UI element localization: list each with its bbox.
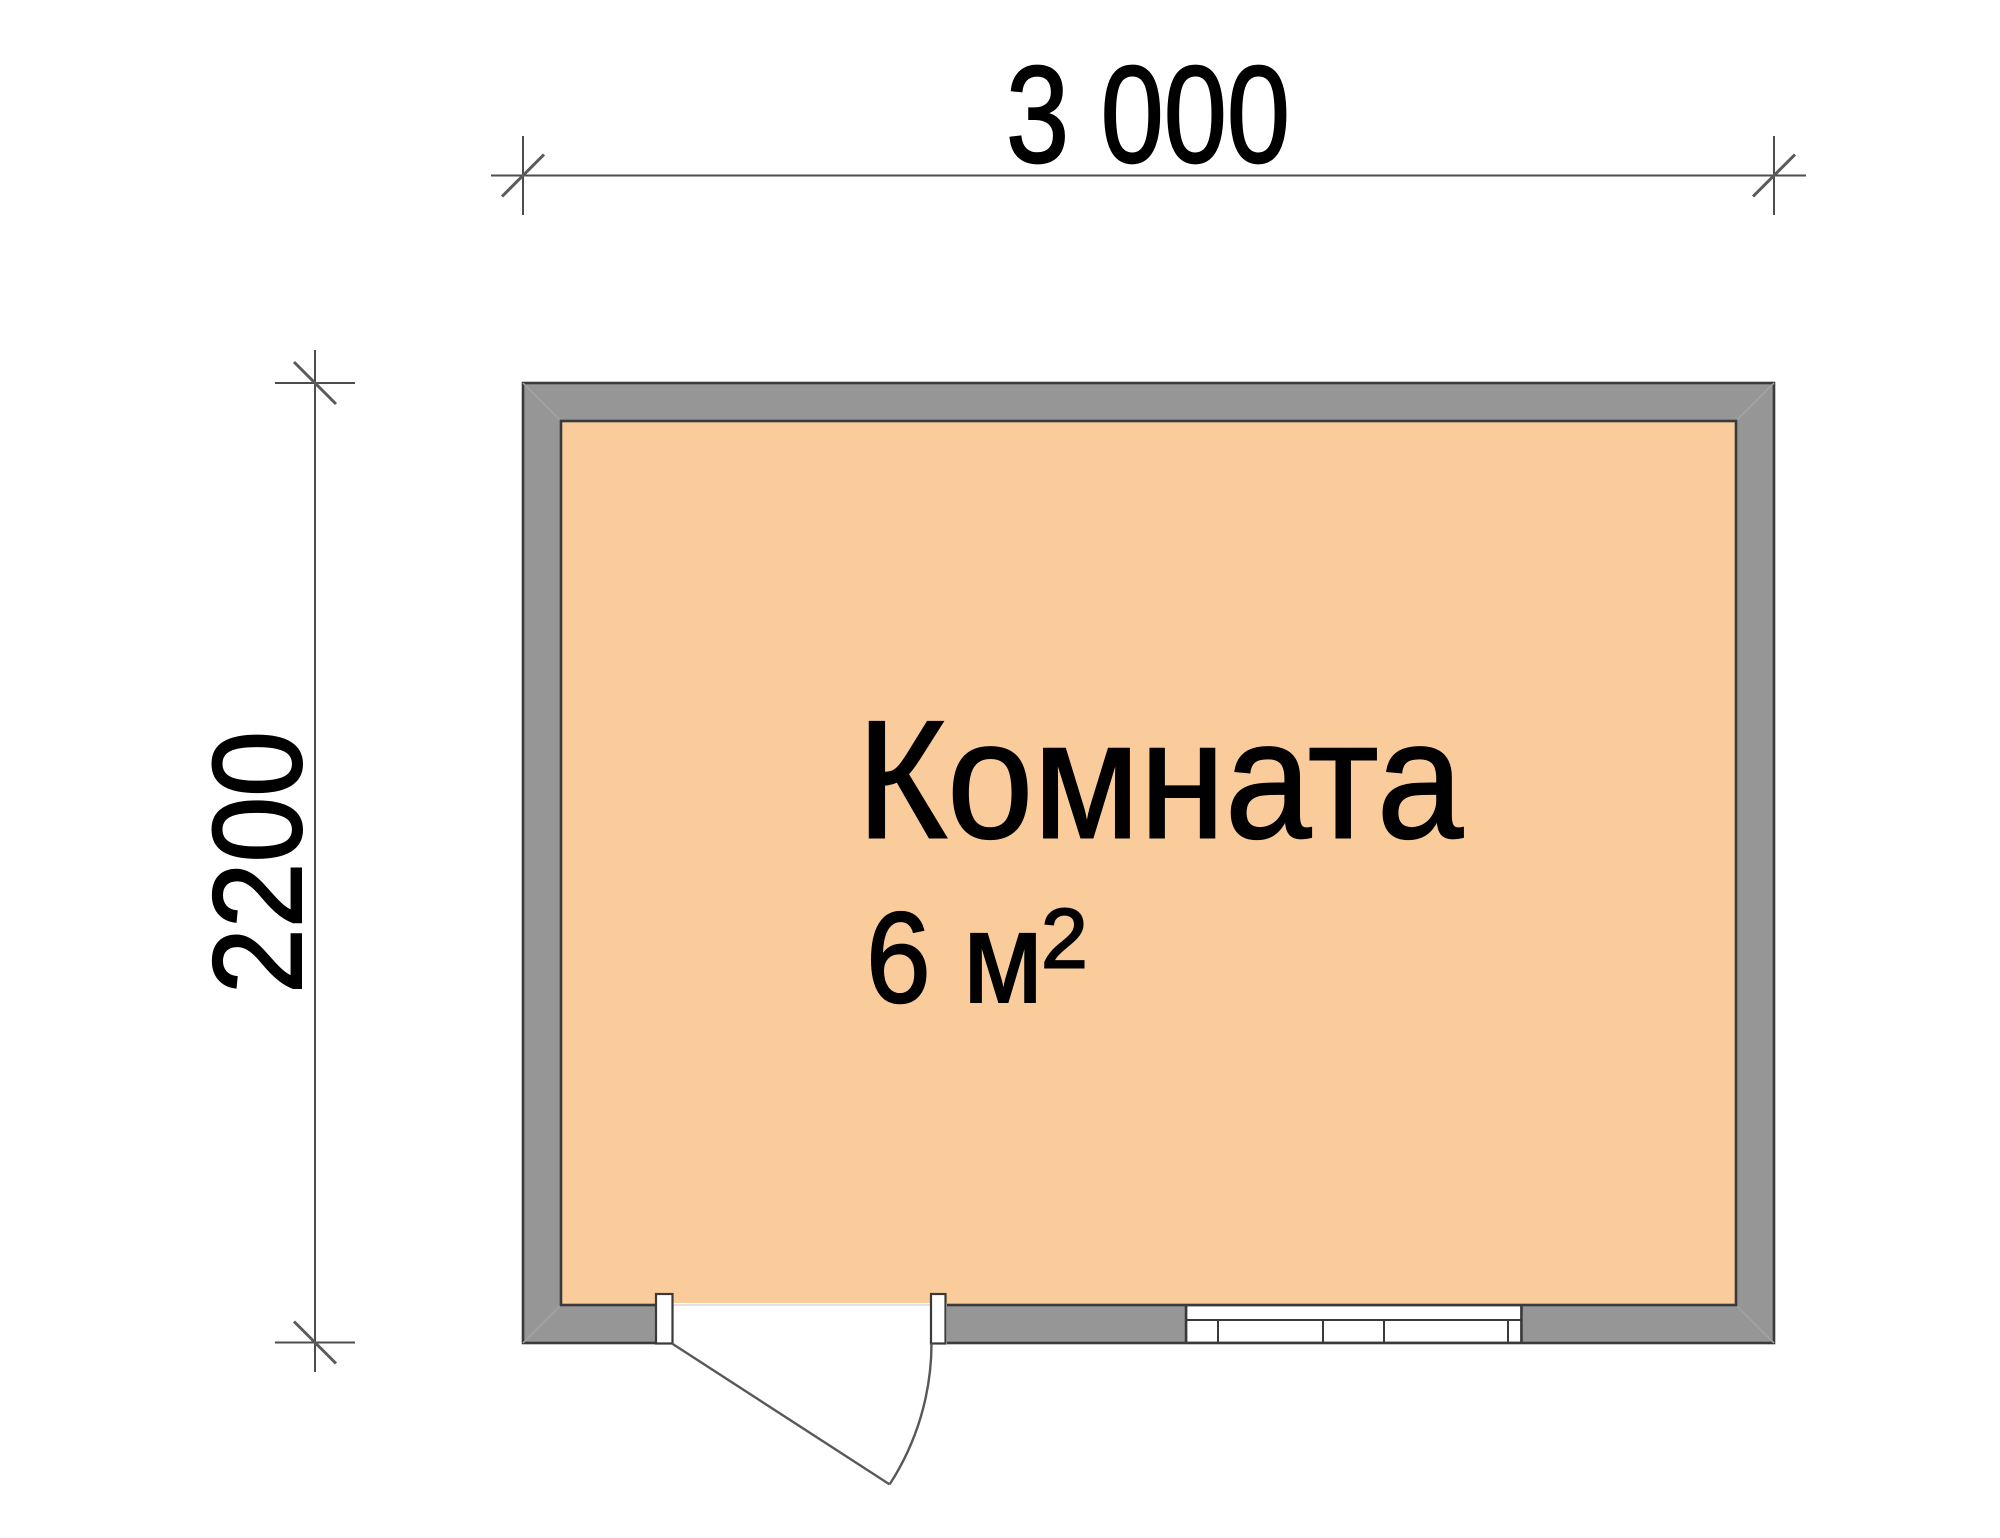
svg-text:3 000: 3 000 <box>1006 38 1290 192</box>
svg-text:Комната: Комната <box>857 686 1464 874</box>
svg-text:2: 2 <box>1041 892 1088 986</box>
svg-text:2200: 2200 <box>187 731 328 994</box>
svg-text:6 м: 6 м <box>866 886 1043 1030</box>
